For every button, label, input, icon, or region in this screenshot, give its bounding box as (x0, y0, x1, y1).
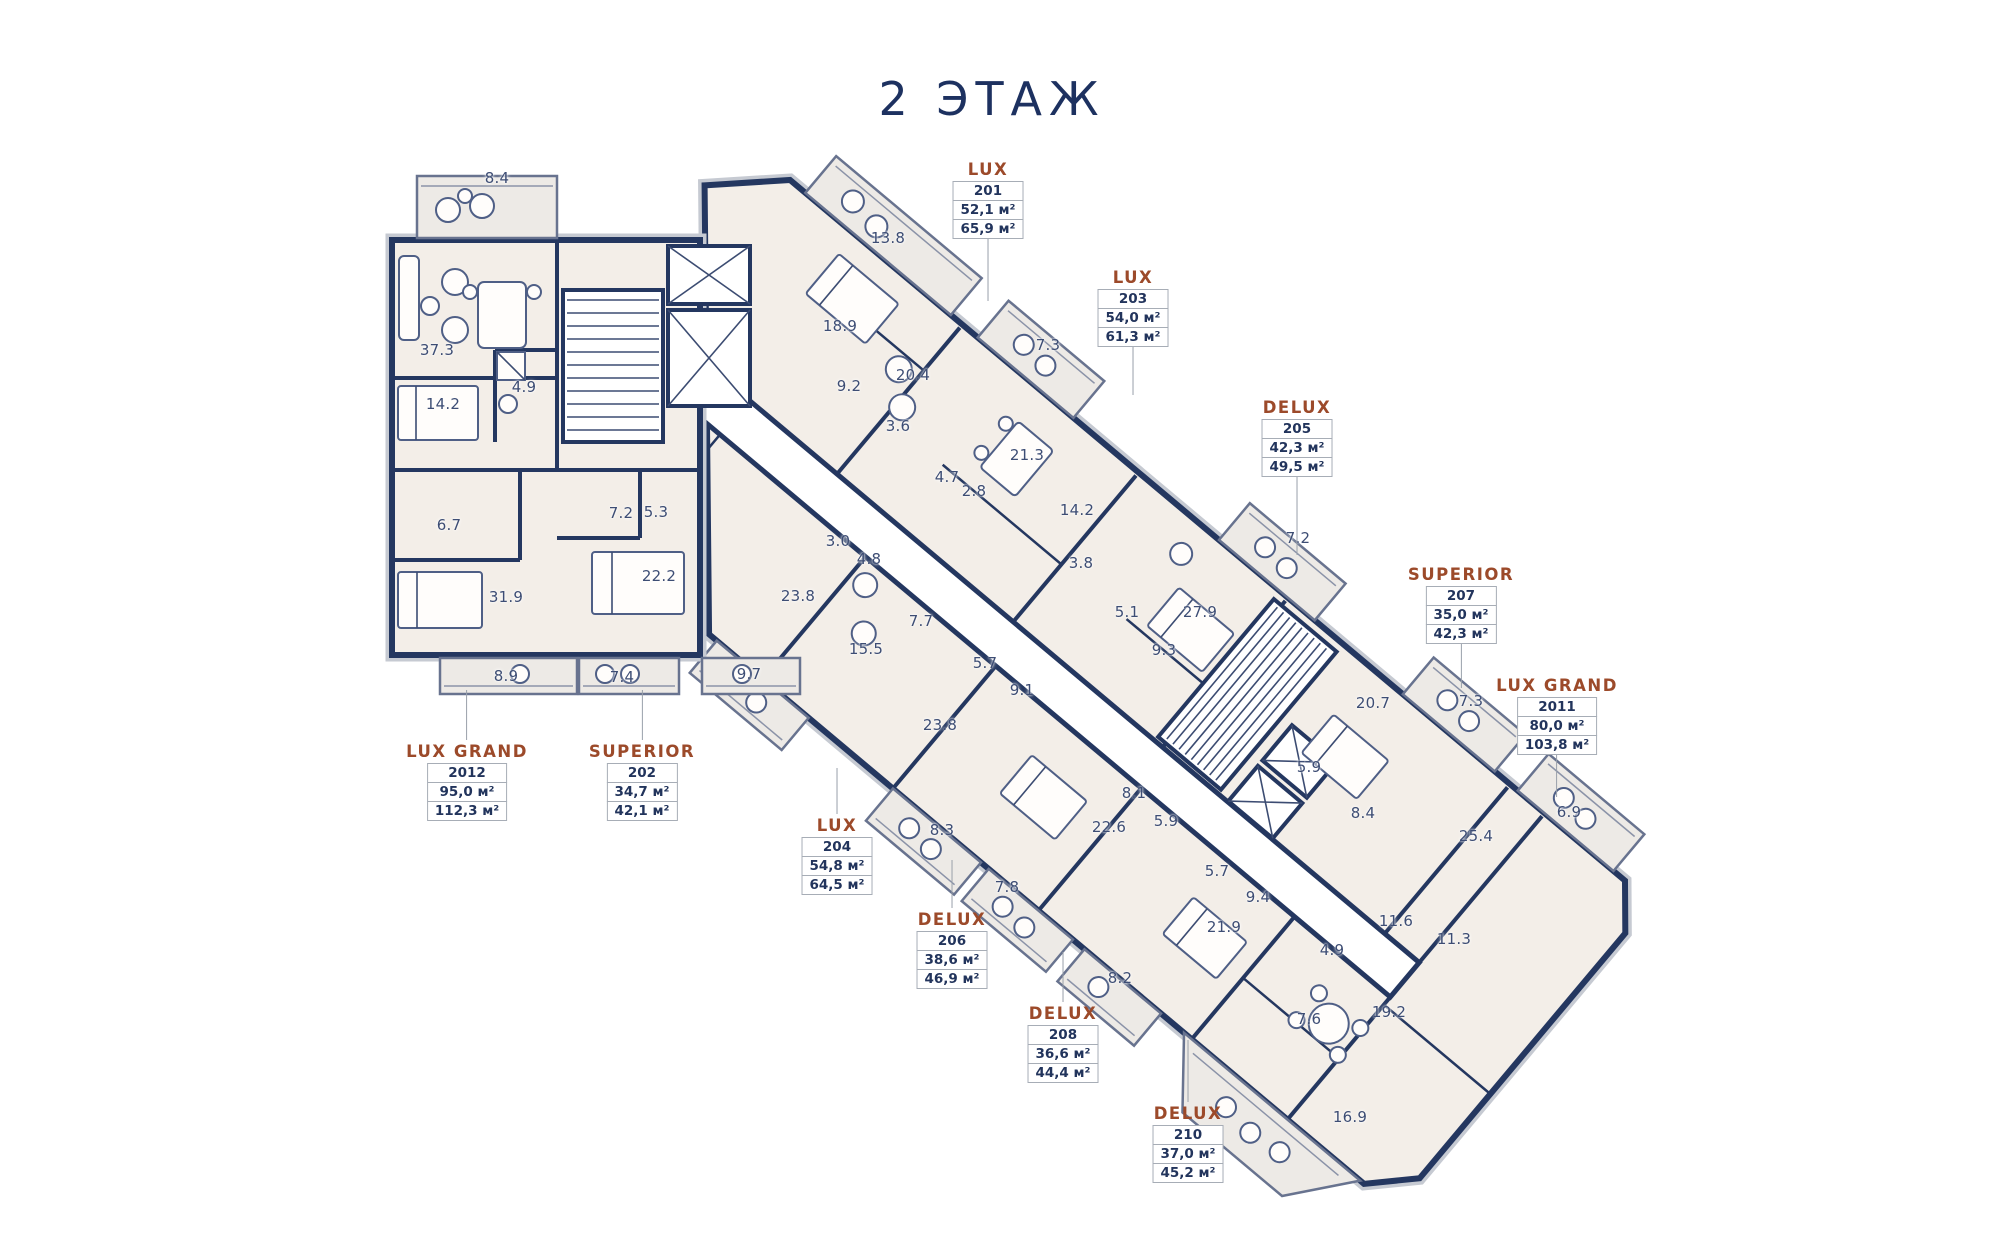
unit-area-total: 46,9 м² (917, 969, 988, 989)
unit-area-total: 49,5 м² (1262, 457, 1333, 477)
unit-type: LUX GRAND (406, 742, 528, 761)
unit-info-box: 21037,0 м²45,2 м² (1153, 1125, 1224, 1183)
unit-info-box: 201295,0 м²112,3 м² (427, 763, 507, 821)
room-area-label: 25.4 (1459, 827, 1493, 845)
room-area-label: 16.9 (1333, 1108, 1367, 1126)
leader-line (1063, 952, 1064, 1002)
room-area-label: 8.2 (1108, 969, 1132, 987)
room-area-label: 7.6 (1297, 1010, 1321, 1028)
unit-area-total: 45,2 м² (1153, 1163, 1224, 1183)
unit-type: DELUX (1263, 398, 1332, 417)
unit-type: SUPERIOR (1408, 565, 1514, 584)
unit-area-living: 35,0 м² (1426, 605, 1497, 625)
room-area-label: 7.3 (1036, 336, 1060, 354)
unit-number: 205 (1262, 419, 1333, 439)
unit-number: 206 (917, 931, 988, 951)
unit-area-living: 95,0 м² (427, 782, 507, 802)
unit-type: SUPERIOR (589, 742, 695, 761)
unit-info-box: 20836,6 м²44,4 м² (1028, 1025, 1099, 1083)
unit-type: LUX (1113, 268, 1154, 287)
room-area-label: 8.9 (494, 667, 518, 685)
floor-plan-page: 2 ЭТАЖ (0, 0, 2000, 1252)
unit-label-2012[interactable]: LUX GRAND201295,0 м²112,3 м² (406, 690, 528, 821)
room-area-label: 22.6 (1092, 818, 1126, 836)
room-area-label: 5.9 (1154, 812, 1178, 830)
room-area-label: 21.3 (1010, 446, 1044, 464)
room-area-label: 8.3 (930, 821, 954, 839)
room-area-label: 3.6 (886, 417, 910, 435)
unit-area-living: 54,8 м² (802, 856, 873, 876)
room-area-label: 9.7 (737, 665, 761, 683)
room-area-label: 7.4 (610, 668, 634, 686)
unit-area-total: 42,3 м² (1426, 624, 1497, 644)
unit-info-box: 20735,0 м²42,3 м² (1426, 586, 1497, 644)
room-area-label: 9.4 (1246, 888, 1270, 906)
room-area-label: 15.5 (849, 640, 883, 658)
unit-info-box: 20638,6 м²46,9 м² (917, 931, 988, 989)
leader-line (641, 690, 642, 740)
room-area-label: 14.2 (1060, 501, 1094, 519)
room-area-label: 5.3 (644, 503, 668, 521)
unit-area-living: 37,0 м² (1153, 1144, 1224, 1164)
unit-area-living: 52,1 м² (953, 200, 1024, 220)
room-area-label: 6.7 (437, 516, 461, 534)
unit-info-box: 20234,7 м²42,1 м² (607, 763, 678, 821)
room-area-label: 14.2 (426, 395, 460, 413)
unit-type: LUX (968, 160, 1009, 179)
unit-type: LUX (817, 816, 858, 835)
room-area-label: 4.8 (857, 550, 881, 568)
unit-info-box: 201180,0 м²103,8 м² (1517, 697, 1597, 755)
room-area-label: 5.7 (973, 654, 997, 672)
leader-line (952, 860, 953, 908)
unit-area-living: 80,0 м² (1517, 716, 1597, 736)
leader-line (1460, 644, 1461, 688)
unit-number: 2012 (427, 763, 507, 783)
room-area-label: 19.2 (1372, 1003, 1406, 1021)
room-area-label: 22.2 (642, 567, 676, 585)
unit-area-total: 103,8 м² (1517, 735, 1597, 755)
unit-number: 2011 (1517, 697, 1597, 717)
room-area-label: 11.3 (1437, 930, 1471, 948)
stairwell-1 (563, 290, 663, 442)
room-area-label: 4.9 (512, 378, 536, 396)
room-area-label: 23.8 (923, 716, 957, 734)
room-area-label: 8.4 (1351, 804, 1375, 822)
unit-label-202[interactable]: SUPERIOR20234,7 м²42,1 м² (589, 690, 695, 821)
room-area-label: 7.3 (1459, 692, 1483, 710)
unit-area-total: 112,3 м² (427, 801, 507, 821)
unit-area-living: 54,0 м² (1098, 308, 1169, 328)
unit-area-living: 36,6 м² (1028, 1044, 1099, 1064)
unit-label-204[interactable]: LUX20454,8 м²64,5 м² (802, 768, 873, 895)
room-area-label: 9.2 (837, 377, 861, 395)
room-area-label: 27.9 (1183, 603, 1217, 621)
unit-label-210[interactable]: DELUX21037,0 м²45,2 м² (1153, 1040, 1224, 1183)
room-area-label: 2.8 (962, 482, 986, 500)
leader-line (1556, 755, 1557, 797)
leader-line (837, 768, 838, 814)
unit-type: DELUX (1154, 1104, 1223, 1123)
room-area-label: 13.8 (871, 229, 905, 247)
room-area-label: 5.1 (1115, 603, 1139, 621)
unit-info-box: 20354,0 м²61,3 м² (1098, 289, 1169, 347)
elevator-shafts-1 (668, 246, 750, 406)
room-area-label: 31.9 (489, 588, 523, 606)
unit-label-207[interactable]: SUPERIOR20735,0 м²42,3 м² (1408, 563, 1514, 688)
unit-number: 202 (607, 763, 678, 783)
unit-label-206[interactable]: DELUX20638,6 м²46,9 м² (917, 860, 988, 989)
room-area-label: 7.2 (609, 504, 633, 522)
unit-number: 201 (953, 181, 1024, 201)
unit-label-208[interactable]: DELUX20836,6 м²44,4 м² (1028, 952, 1099, 1083)
unit-number: 203 (1098, 289, 1169, 309)
room-area-label: 3.8 (1069, 554, 1093, 572)
unit-area-total: 64,5 м² (802, 875, 873, 895)
leader-line (988, 239, 989, 301)
unit-number: 207 (1426, 586, 1497, 606)
room-area-label: 20.4 (896, 366, 930, 384)
room-area-label: 5.7 (1205, 862, 1229, 880)
unit-area-total: 44,4 м² (1028, 1063, 1099, 1083)
leader-line (1297, 477, 1298, 555)
room-area-label: 18.9 (823, 317, 857, 335)
unit-label-201[interactable]: LUX20152,1 м²65,9 м² (953, 158, 1024, 301)
room-area-label: 6.9 (1557, 803, 1581, 821)
room-area-label: 9.1 (1010, 681, 1034, 699)
unit-number: 210 (1153, 1125, 1224, 1145)
unit-info-box: 20152,1 м²65,9 м² (953, 181, 1024, 239)
room-area-label: 9.3 (1152, 641, 1176, 659)
unit-label-203[interactable]: LUX20354,0 м²61,3 м² (1098, 266, 1169, 395)
unit-type: DELUX (918, 910, 987, 929)
leader-line (1133, 347, 1134, 395)
unit-area-total: 65,9 м² (953, 219, 1024, 239)
unit-number: 208 (1028, 1025, 1099, 1045)
room-area-label: 11.6 (1379, 912, 1413, 930)
room-area-label: 4.7 (935, 468, 959, 486)
room-area-label: 3.0 (826, 532, 850, 550)
leader-line (466, 690, 467, 740)
leader-line (1188, 1040, 1189, 1102)
unit-info-box: 20542,3 м²49,5 м² (1262, 419, 1333, 477)
unit-area-living: 38,6 м² (917, 950, 988, 970)
room-area-label: 8.4 (485, 169, 509, 187)
unit-info-box: 20454,8 м²64,5 м² (802, 837, 873, 895)
unit-type: DELUX (1029, 1004, 1098, 1023)
unit-area-living: 42,3 м² (1262, 438, 1333, 458)
unit-label-2011[interactable]: LUX GRAND201180,0 м²103,8 м² (1496, 674, 1618, 797)
room-area-label: 4.9 (1320, 941, 1344, 959)
room-area-label: 8.1 (1122, 784, 1146, 802)
unit-area-living: 34,7 м² (607, 782, 678, 802)
room-area-label: 7.8 (995, 878, 1019, 896)
room-area-label: 5.9 (1297, 758, 1321, 776)
unit-number: 204 (802, 837, 873, 857)
unit-label-205[interactable]: DELUX20542,3 м²49,5 м² (1262, 396, 1333, 555)
room-area-label: 21.9 (1207, 918, 1241, 936)
room-area-label: 7.7 (909, 612, 933, 630)
room-area-label: 20.7 (1356, 694, 1390, 712)
unit-area-total: 61,3 м² (1098, 327, 1169, 347)
unit-type: LUX GRAND (1496, 676, 1618, 695)
room-area-label: 37.3 (420, 341, 454, 359)
room-area-label: 23.8 (781, 587, 815, 605)
unit-area-total: 42,1 м² (607, 801, 678, 821)
